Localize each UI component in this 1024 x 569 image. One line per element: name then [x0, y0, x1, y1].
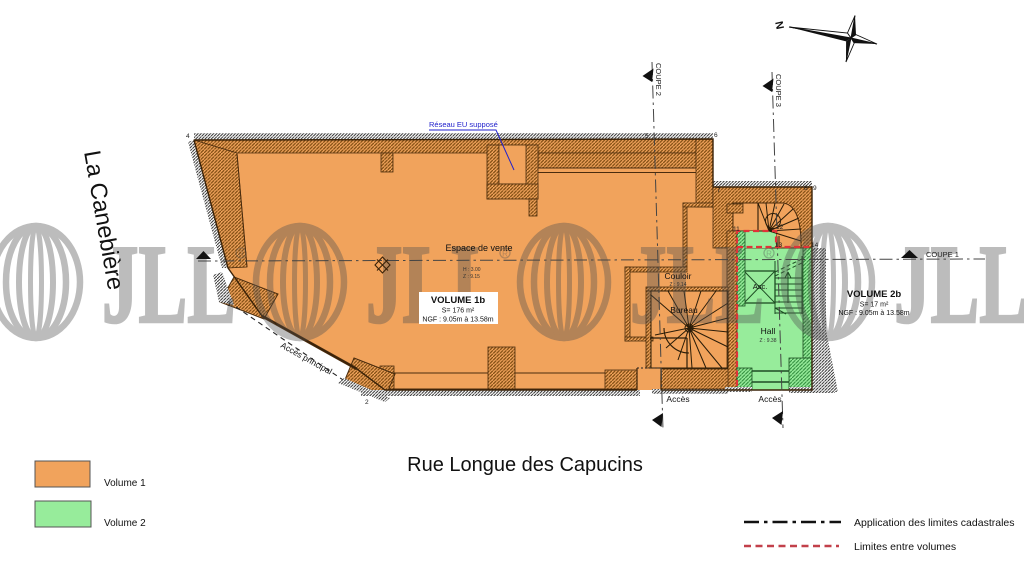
- svg-text:R: R: [238, 250, 244, 259]
- svg-text:JLL: JLL: [366, 223, 500, 347]
- svg-text:Rue Longue des Capucins: Rue Longue des Capucins: [407, 454, 643, 476]
- svg-text:VOLUME 2b: VOLUME 2b: [847, 289, 902, 300]
- svg-text:13: 13: [775, 242, 783, 249]
- svg-text:H : 3.00: H : 3.00: [463, 267, 481, 273]
- svg-text:COUPE 1: COUPE 1: [926, 250, 959, 259]
- svg-text:12: 12: [776, 224, 784, 231]
- svg-text:VOLUME 1b: VOLUME 1b: [431, 295, 486, 306]
- svg-text:5: 5: [645, 133, 649, 140]
- svg-text:Z : 9.38: Z : 9.38: [760, 338, 777, 344]
- svg-text:Limites entre volumes: Limites entre volumes: [854, 541, 956, 553]
- svg-text:6: 6: [714, 132, 718, 139]
- svg-text:14: 14: [811, 242, 819, 249]
- svg-text:Z : 9.14: Z : 9.14: [670, 282, 687, 288]
- svg-text:S= 17 m²: S= 17 m²: [860, 302, 889, 309]
- svg-text:Espace de vente: Espace de vente: [445, 243, 512, 253]
- svg-text:R: R: [766, 250, 772, 259]
- svg-text:11: 11: [733, 226, 740, 233]
- svg-text:Z : 9.15: Z : 9.15: [463, 274, 480, 280]
- svg-text:Accès: Accès: [666, 394, 689, 404]
- svg-text:3: 3: [227, 301, 231, 308]
- svg-text:7: 7: [717, 187, 721, 194]
- svg-text:COUPE 2: COUPE 2: [654, 63, 663, 96]
- svg-text:Réseau EU supposé: Réseau EU supposé: [429, 120, 498, 129]
- svg-text:Volume 1: Volume 1: [104, 478, 146, 489]
- svg-text:9: 9: [813, 185, 817, 192]
- svg-text:Hall: Hall: [761, 326, 776, 336]
- svg-text:Accès: Accès: [758, 394, 781, 404]
- svg-text:Couloir: Couloir: [665, 271, 692, 281]
- svg-text:Volume 2: Volume 2: [104, 518, 146, 529]
- svg-text:4: 4: [186, 133, 190, 140]
- svg-text:NGF : 9.05m à 13.58m: NGF : 9.05m à 13.58m: [422, 317, 493, 324]
- svg-text:Asc.: Asc.: [753, 282, 768, 291]
- svg-text:Application des limites cadast: Application des limites cadastrales: [854, 517, 1015, 529]
- svg-text:2: 2: [365, 399, 369, 406]
- svg-text:JLL: JLL: [894, 223, 1024, 347]
- svg-text:COUPE 3: COUPE 3: [774, 74, 783, 107]
- svg-text:S= 176 m²: S= 176 m²: [442, 308, 475, 315]
- svg-text:8: 8: [804, 185, 808, 192]
- svg-text:Bureau: Bureau: [670, 305, 698, 315]
- svg-text:JLL: JLL: [630, 223, 764, 347]
- svg-text:NGF : 9.05m à 13.58m: NGF : 9.05m à 13.58m: [838, 310, 909, 317]
